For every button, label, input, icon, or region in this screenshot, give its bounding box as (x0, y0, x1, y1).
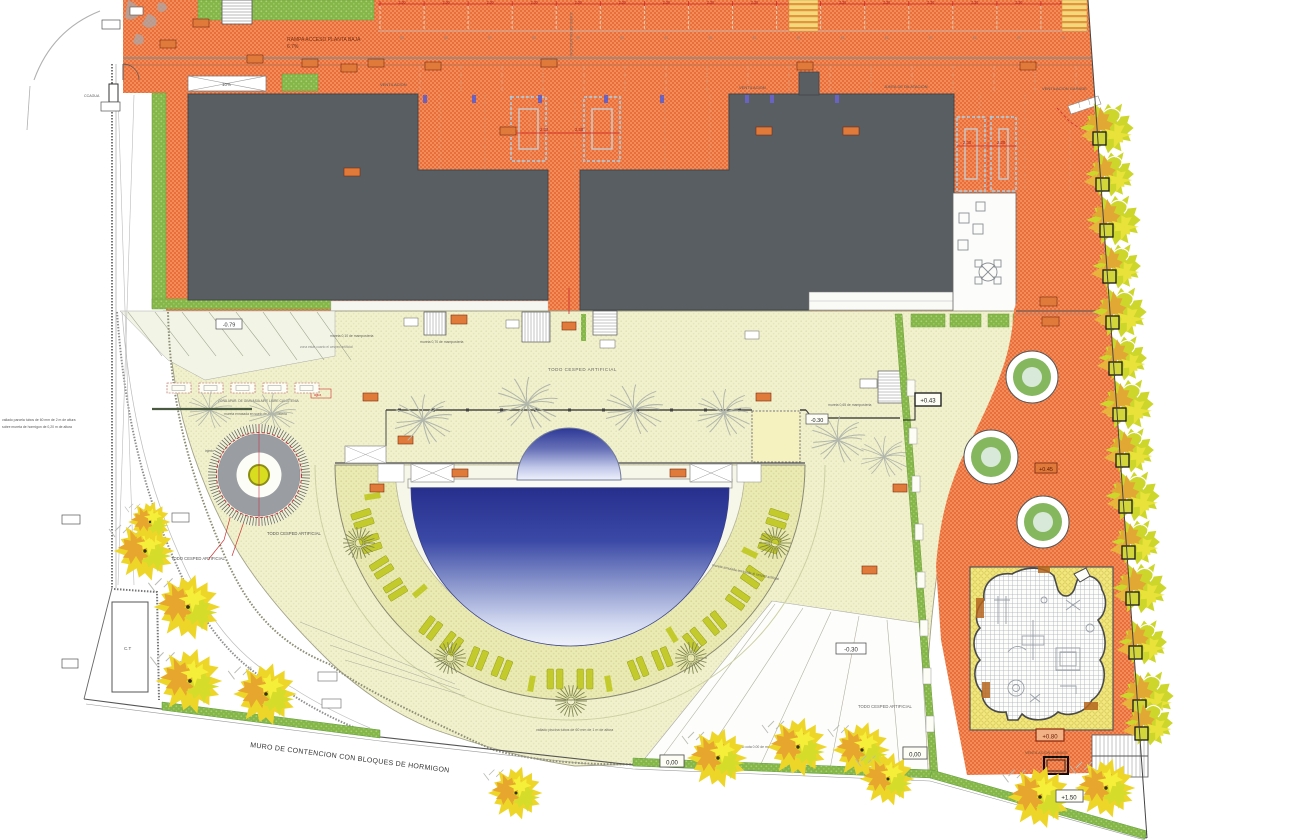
svg-text:VENTILACION GARAGE: VENTILACION GARAGE (1025, 751, 1068, 755)
svg-text:VENTILACION: VENTILACION (739, 85, 766, 90)
svg-text:0,00: 0,00 (909, 753, 921, 759)
svg-text:63: 63 (753, 36, 757, 40)
svg-text:67: 67 (929, 36, 933, 40)
svg-text:2,30: 2,30 (487, 1, 494, 5)
svg-text:56: 56 (444, 36, 448, 40)
svg-text:58: 58 (532, 36, 536, 40)
svg-text:vallado piscina tubos de 60 mm: vallado piscina tubos de 60 mm de 1 m de… (536, 728, 613, 732)
svg-text:2,30: 2,30 (1015, 1, 1022, 5)
svg-text:VENTILACION GARAGE: VENTILACION GARAGE (1042, 86, 1087, 91)
svg-text:CCAGUA: CCAGUA (84, 94, 100, 98)
svg-text:2,30: 2,30 (751, 1, 758, 5)
svg-text:2,30: 2,30 (399, 1, 406, 5)
svg-text:2,30: 2,30 (663, 1, 670, 5)
svg-text:TODO CESPED ARTIFICIAL: TODO CESPED ARTIFICIAL (548, 367, 617, 372)
svg-text:10%: 10% (222, 82, 231, 87)
svg-text:59: 59 (576, 36, 580, 40)
svg-text:2,30: 2,30 (839, 1, 846, 5)
svg-text:55: 55 (400, 36, 404, 40)
svg-text:+0.45: +0.45 (1039, 467, 1053, 473)
svg-text:64: 64 (797, 36, 801, 40)
svg-text:agua: agua (314, 393, 321, 397)
svg-text:2,30: 2,30 (531, 1, 538, 5)
svg-text:JUNTA DE DILATACION: JUNTA DE DILATACION (569, 12, 574, 56)
svg-text:2,30: 2,30 (883, 1, 890, 5)
svg-text:2,30: 2,30 (707, 1, 714, 5)
svg-text:mureta 0,65 de mamposteria: mureta 0,65 de mamposteria (828, 403, 871, 407)
svg-text:65: 65 (841, 36, 845, 40)
svg-text:mureta 0,70 de mamposteria: mureta 0,70 de mamposteria (420, 340, 463, 344)
svg-text:JUNTA DE DILATACION: JUNTA DE DILATACION (884, 84, 928, 89)
svg-text:VENTILACION: VENTILACION (380, 82, 407, 87)
svg-text:2,30: 2,30 (575, 127, 584, 132)
svg-text:2,30: 2,30 (575, 1, 582, 5)
svg-text:68: 68 (973, 36, 977, 40)
svg-text:2,30: 2,30 (997, 140, 1006, 145)
svg-text:61: 61 (665, 36, 669, 40)
svg-text:RAMPA ACCESO PLANTA BAJA: RAMPA ACCESO PLANTA BAJA (287, 37, 361, 43)
svg-text:2,30: 2,30 (927, 1, 934, 5)
svg-text:+0.80: +0.80 (1042, 735, 1058, 741)
svg-text:2,30: 2,30 (619, 1, 626, 5)
svg-text:62: 62 (709, 36, 713, 40)
svg-text:6.7%: 6.7% (287, 44, 299, 50)
svg-text:2,30: 2,30 (540, 127, 549, 132)
svg-text:-0.30: -0.30 (811, 418, 824, 424)
svg-text:0,00: 0,00 (666, 761, 678, 767)
svg-text:2,30: 2,30 (443, 1, 450, 5)
svg-text:vallado parcela tubos de 60 mm: vallado parcela tubos de 60 mm de 2 m de… (2, 418, 76, 422)
svg-text:C.T: C.T (124, 646, 132, 651)
svg-text:TODO CESPED ARTIFICIAL: TODO CESPED ARTIFICIAL (858, 704, 913, 709)
svg-text:-0.79: -0.79 (223, 323, 236, 329)
svg-text:sobre mureta de hormigon de 0,: sobre mureta de hormigon de 0,20 m de al… (2, 425, 72, 429)
svg-text:69: 69 (1017, 36, 1021, 40)
svg-text:+0.43: +0.43 (920, 399, 936, 405)
svg-text:57: 57 (488, 36, 492, 40)
svg-text:70: 70 (1061, 36, 1065, 40)
svg-text:2,30: 2,30 (963, 140, 972, 145)
svg-text:2,30: 2,30 (971, 1, 978, 5)
svg-text:+1.50: +1.50 (1061, 796, 1077, 802)
svg-text:66: 66 (885, 36, 889, 40)
svg-text:TODO CESPED ARTIFICIAL: TODO CESPED ARTIFICIAL (171, 556, 226, 561)
svg-text:60: 60 (620, 36, 624, 40)
svg-text:TODO CESPED ARTIFICIAL: TODO CESPED ARTIFICIAL (267, 531, 322, 536)
svg-text:-0.30: -0.30 (844, 648, 858, 654)
svg-text:zona estar cuarto el cesped ar: zona estar cuarto el cesped artificial (300, 345, 353, 349)
svg-text:mureta 0,10 de mamposteria: mureta 0,10 de mamposteria (330, 334, 373, 338)
